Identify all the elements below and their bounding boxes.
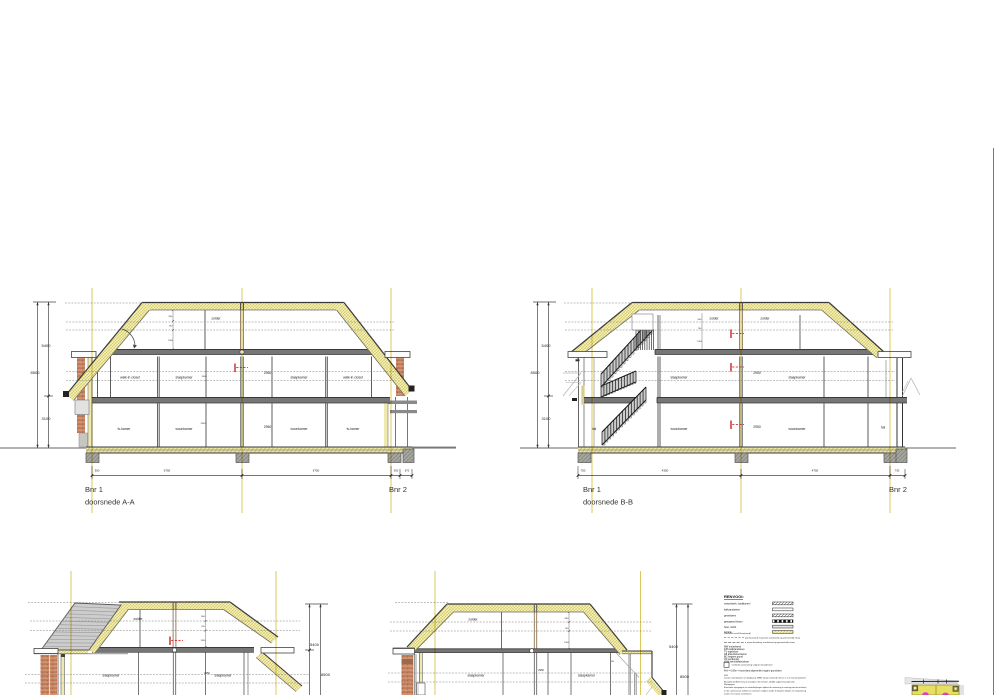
svg-text:zolder: zolder (709, 317, 719, 321)
svg-text:zolder: zolder (468, 618, 478, 622)
svg-text:5400: 5400 (310, 642, 320, 647)
svg-text:750: 750 (581, 468, 586, 472)
svg-text:woonkamer: woonkamer (788, 427, 806, 431)
svg-text:gevelsteen: gevelsteen (724, 615, 737, 618)
svg-text:hal: hal (881, 426, 886, 430)
svg-text:670: 670 (405, 468, 410, 472)
svg-text:300: 300 (394, 468, 399, 472)
svg-text:kalkzandsteen: kalkzandsteen (724, 609, 741, 612)
svg-text:peil bestaande maaiveld, aansl: peil bestaande maaiveld, aansluitend op … (745, 636, 801, 639)
svg-text:1300: 1300 (697, 341, 703, 343)
svg-text:6750: 6750 (313, 468, 320, 472)
svg-text:2950: 2950 (753, 425, 761, 429)
svg-text:woonkamer: woonkamer (290, 427, 308, 431)
svg-text:Brandwerendheid tussen woninge: Brandwerendheid tussen woningen: 60 minu… (724, 680, 795, 683)
svg-text:tv-kamer: tv-kamer (118, 427, 132, 431)
svg-text:Eventuele wijzigingen en maata: Eventuele wijzigingen en maatafwijkingen… (724, 686, 807, 689)
svg-text:RENVOOI:: RENVOOI: (724, 594, 744, 599)
svg-text:slaapkamer: slaapkamer (578, 674, 596, 678)
svg-text:zolder: zolder (211, 317, 221, 321)
svg-text:8500: 8500 (31, 370, 41, 375)
svg-text:730: 730 (895, 468, 900, 472)
svg-text:3100: 3100 (542, 416, 552, 421)
svg-text:Bnr 2: Bnr 2 (889, 485, 907, 494)
svg-text:en de constructeur melden en u: en de constructeur melden en uitvoeren v… (724, 690, 807, 693)
svg-text:Peil = 0.00m = bovenkant afgew: Peil = 0.00m = bovenkant afgewerkte bega… (724, 669, 782, 672)
svg-text:walk-in closet: walk-in closet (120, 376, 140, 380)
svg-text:hout, zacht: hout, zacht (724, 626, 737, 629)
svg-text:8500: 8500 (321, 672, 331, 677)
svg-text:woonkamer: woonkamer (175, 427, 193, 431)
svg-text:Bnr 2: Bnr 2 (389, 485, 407, 494)
svg-text:slaapkamer: slaapkamer (102, 674, 120, 678)
svg-text:ventilatie-voorziening volgens: ventilatie-voorziening volgens bouwbeslu… (732, 664, 773, 667)
svg-text:1300: 1300 (564, 642, 570, 644)
svg-text:1300: 1300 (168, 340, 174, 342)
svg-text:slaapkamer: slaapkamer (670, 376, 688, 380)
svg-text:zolder: zolder (133, 617, 143, 621)
svg-text:4350: 4350 (662, 468, 669, 472)
svg-text:4750: 4750 (812, 468, 819, 472)
svg-text:nieuw bouwlaag, aansluitend op: nieuw bouwlaag, aansluitend op gemeentel… (747, 641, 795, 644)
svg-text:2600: 2600 (202, 376, 208, 378)
svg-text:nieuwe raamkozijnen en beglazi: nieuwe raamkozijnen en beglazing: WBB, t… (724, 676, 806, 679)
svg-text:5400: 5400 (669, 644, 679, 649)
svg-text:slaapkamer: slaapkamer (467, 674, 485, 678)
svg-text:Wijzigingen:: Wijzigingen: (724, 684, 736, 686)
svg-text:slaapkamer: slaapkamer (214, 674, 232, 678)
svg-text:slaapkamer: slaapkamer (175, 376, 193, 380)
svg-text:1300: 1300 (201, 640, 207, 642)
svg-text:tv-kamer: tv-kamer (347, 427, 361, 431)
svg-text:walk-in closet: walk-in closet (343, 376, 363, 380)
svg-text:3100: 3100 (42, 416, 52, 421)
svg-text:hal: hal (592, 427, 597, 431)
svg-text:gewapend beton: gewapend beton (724, 620, 743, 623)
svg-text:Bnr 1: Bnr 1 (85, 485, 103, 494)
svg-text:(thermisch en/of B-isolerend): (thermisch en/of B-isolerend) (724, 632, 751, 635)
svg-text:2950: 2950 (201, 423, 207, 425)
svg-text:2950: 2950 (264, 425, 272, 429)
svg-text:woonkamer: woonkamer (670, 427, 688, 431)
svg-text:slaapkamer: slaapkamer (788, 376, 806, 380)
svg-text:doorsnede B-B: doorsnede B-B (583, 498, 633, 507)
svg-text:2950: 2950 (538, 668, 544, 672)
svg-text:5400: 5400 (542, 343, 552, 348)
svg-text:8500: 8500 (531, 370, 541, 375)
svg-text:8500: 8500 (680, 674, 690, 679)
svg-text:6750: 6750 (164, 468, 171, 472)
svg-text:slaapkamer: slaapkamer (290, 376, 308, 380)
svg-text:300: 300 (95, 468, 100, 472)
svg-text:zolder: zolder (760, 317, 770, 321)
svg-text:5400: 5400 (42, 343, 52, 348)
svg-text:metselwerk, traditioneel: metselwerk, traditioneel (724, 603, 751, 606)
